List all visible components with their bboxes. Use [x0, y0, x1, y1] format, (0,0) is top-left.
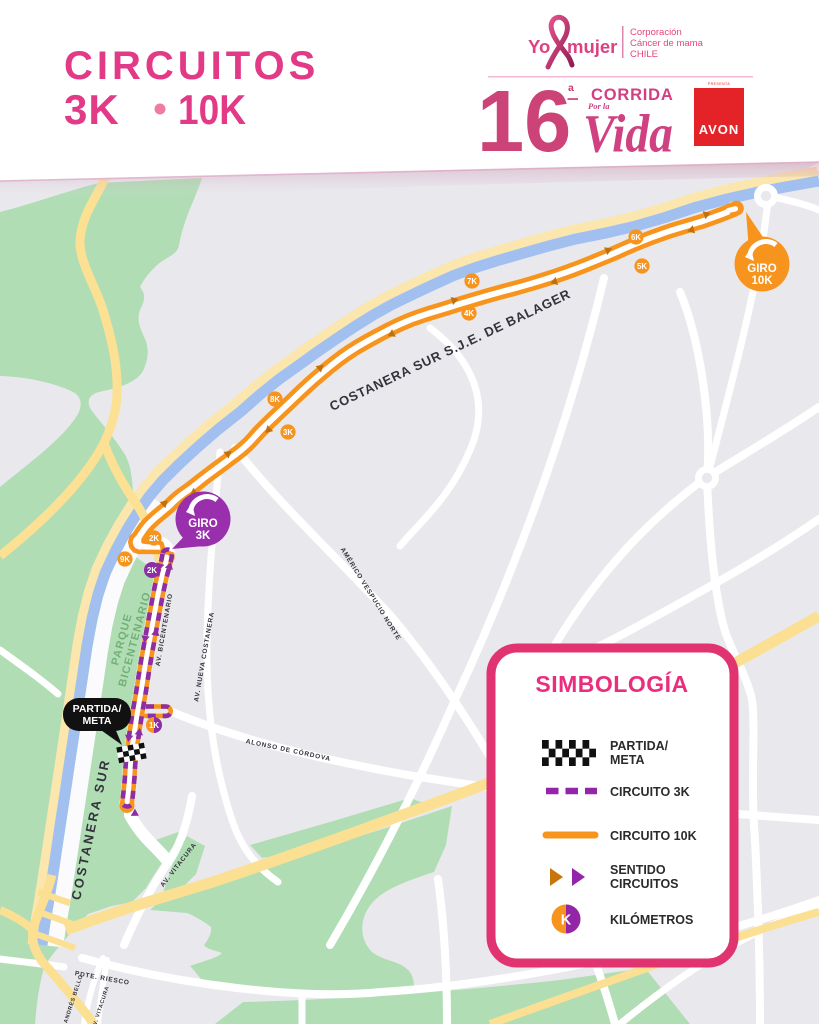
- svg-text:mujer: mujer: [567, 36, 617, 57]
- svg-text:KILÓMETROS: KILÓMETROS: [610, 912, 693, 927]
- svg-text:PARTIDA/: PARTIDA/: [610, 739, 669, 753]
- svg-text:5K: 5K: [637, 262, 647, 271]
- svg-text:1K: 1K: [149, 721, 159, 730]
- svg-text:CIRCUITO 10K: CIRCUITO 10K: [610, 829, 697, 843]
- svg-text:Corporación: Corporación: [630, 27, 682, 38]
- svg-text:10K: 10K: [751, 275, 773, 287]
- svg-text:AVON: AVON: [699, 122, 740, 137]
- svg-text:GIRO: GIRO: [747, 263, 776, 275]
- svg-text:ª: ª: [568, 84, 574, 101]
- svg-text:10K: 10K: [178, 86, 246, 133]
- svg-text:Cáncer de mama: Cáncer de mama: [630, 38, 704, 49]
- svg-text:SENTIDO: SENTIDO: [610, 863, 666, 877]
- svg-text:CIRCUITO 3K: CIRCUITO 3K: [610, 785, 690, 799]
- svg-text:16: 16: [477, 73, 571, 170]
- svg-text:2K: 2K: [149, 534, 159, 543]
- svg-text:3K: 3K: [283, 428, 293, 437]
- svg-text:META: META: [610, 753, 645, 767]
- svg-text:PRESENTA: PRESENTA: [708, 82, 731, 86]
- svg-text:K: K: [561, 913, 572, 929]
- svg-text:CIRCUITOS: CIRCUITOS: [64, 44, 319, 88]
- svg-text:PARTIDA/: PARTIDA/: [73, 703, 122, 715]
- svg-text:2K: 2K: [147, 566, 157, 575]
- svg-text:4K: 4K: [464, 309, 474, 318]
- svg-text:8K: 8K: [270, 395, 280, 404]
- svg-text:Vida: Vida: [583, 104, 673, 164]
- svg-text:3K: 3K: [196, 530, 211, 542]
- svg-text:GIRO: GIRO: [188, 518, 217, 530]
- svg-text:7K: 7K: [467, 277, 477, 286]
- svg-text:CIRCUITOS: CIRCUITOS: [610, 877, 679, 891]
- svg-text:3K: 3K: [64, 86, 120, 133]
- svg-text:SIMBOLOGÍA: SIMBOLOGÍA: [535, 670, 688, 697]
- svg-text:CHILE: CHILE: [630, 49, 658, 60]
- svg-text:Yo: Yo: [528, 36, 550, 57]
- svg-text:META: META: [83, 715, 112, 727]
- svg-text:6K: 6K: [631, 233, 641, 242]
- svg-text:9K: 9K: [120, 555, 130, 564]
